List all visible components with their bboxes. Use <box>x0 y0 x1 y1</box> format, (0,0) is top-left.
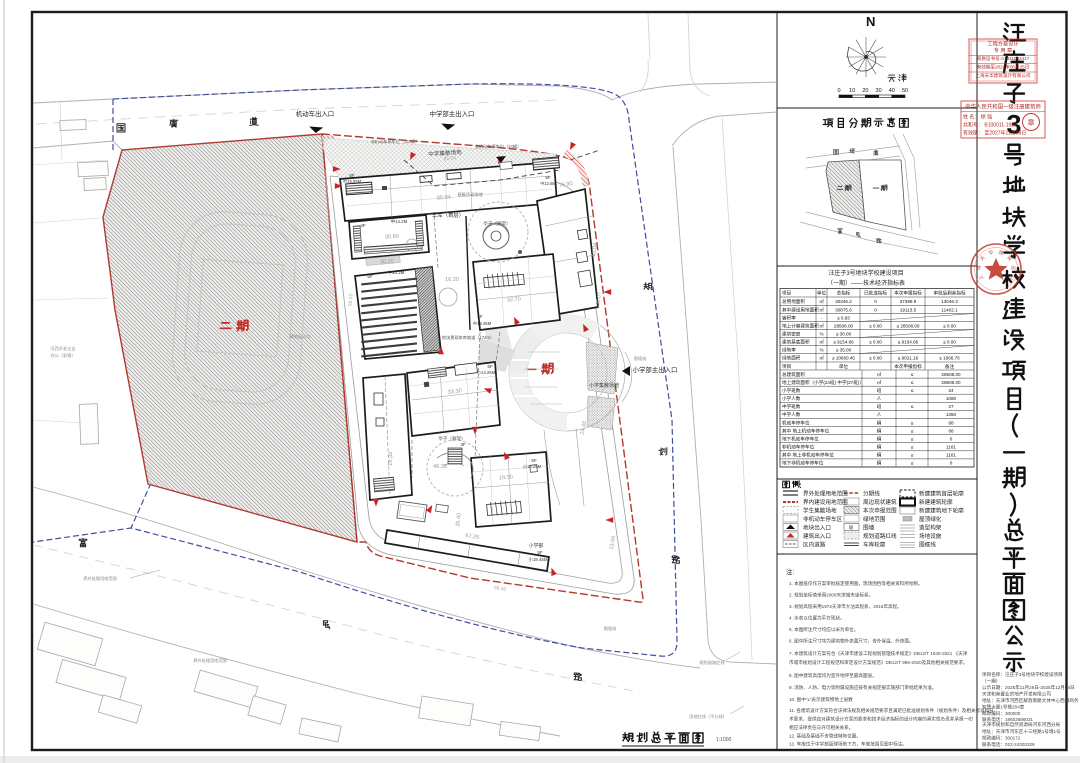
svg-text:容积率: 容积率 <box>782 315 796 322</box>
svg-text:车库轮廓: 车库轮廓 <box>863 541 886 549</box>
svg-text:本次申报范围: 本次申报范围 <box>863 507 897 515</box>
svg-text:汪庄子3号地块学校建设项目: 汪庄子3号地块学校建设项目 <box>828 269 903 277</box>
svg-text:工程方案设计: 工程方案设计 <box>987 40 1018 48</box>
svg-text:≤ 30.00: ≤ 30.00 <box>836 332 852 337</box>
svg-text:市城市规划设计工程规范和审定设计方案规范》DB12/T 99: 市城市规划设计工程规范和审定设计方案规范》DB12/T 998-2020及其他相… <box>789 659 968 666</box>
svg-text:规划道路红线: 规划道路红线 <box>863 532 897 540</box>
svg-text:地址：天津市河西区解放南路文体中心西侧商务: 地址：天津市河西区解放南路文体中心西侧商务 <box>982 697 1079 704</box>
svg-text:2. 规划坐标值采用2000天津城市坐标系。: 2. 规划坐标值采用2000天津城市坐标系。 <box>789 592 873 599</box>
svg-text:中学班数: 中学班数 <box>782 403 801 410</box>
svg-text:27: 27 <box>948 404 954 409</box>
svg-text:非机动车停车位（24辆）: 非机动车停车位（24辆） <box>475 143 522 150</box>
svg-text:其中 地上机动车停车位: 其中 地上机动车停车位 <box>782 427 830 434</box>
svg-text:地下机动车停车位: 地下机动车停车位 <box>782 435 819 442</box>
svg-text:规划道路红线: 规划道路红线 <box>699 659 725 666</box>
svg-text:20: 20 <box>862 88 868 94</box>
svg-text:≤ 9154.66: ≤ 9154.66 <box>898 340 919 345</box>
svg-text:建筑密度: 建筑密度 <box>782 331 801 338</box>
svg-text:分期线: 分期线 <box>863 490 880 498</box>
svg-text:机动车停车位: 机动车停车位 <box>782 419 810 426</box>
svg-text:设: 设 <box>1009 265 1016 270</box>
svg-text:中14.2M: 中14.2M <box>388 269 405 276</box>
svg-text:11402.1: 11402.1 <box>941 308 958 313</box>
svg-text:16.34: 16.34 <box>387 452 394 466</box>
svg-text:其中 地上非机动车停车位: 其中 地上非机动车停车位 <box>782 452 834 459</box>
svg-text:辆: 辆 <box>877 460 882 467</box>
svg-text:界内建设用地范围: 界内建设用地范围 <box>803 498 848 506</box>
svg-text:学生集散场地: 学生集散场地 <box>803 507 837 515</box>
svg-text:%: % <box>819 332 823 337</box>
svg-text:≤ 9154.66: ≤ 9154.66 <box>833 340 854 345</box>
svg-text:机动车出入口: 机动车出入口 <box>296 109 334 118</box>
svg-text:辆: 辆 <box>877 427 882 434</box>
svg-text:中12.6M: 中12.6M <box>540 180 556 187</box>
svg-text:中14.2M: 中14.2M <box>391 218 408 225</box>
svg-text:≤ 0.93: ≤ 0.93 <box>837 316 850 321</box>
svg-text:5F: 5F <box>545 175 551 180</box>
svg-text:㎡: ㎡ <box>819 298 824 304</box>
svg-text:㎡: ㎡ <box>819 339 824 345</box>
svg-text:19113.5: 19113.5 <box>900 308 917 313</box>
svg-text:30875.6: 30875.6 <box>835 308 852 313</box>
svg-text:㎡: ㎡ <box>877 379 882 385</box>
svg-text:专 用 章: 专 用 章 <box>994 46 1012 54</box>
svg-text:1. 本图纸仅作方案审批核定使用图，现场围挡等相关资料所绘制: 1. 本图纸仅作方案审批核定使用图，现场围挡等相关资料所绘制。 <box>789 580 923 587</box>
svg-text:N: N <box>866 14 875 29</box>
svg-text:总用地面积: 总用地面积 <box>782 298 805 305</box>
svg-text:11. 各建筑设计方案符合法律法规及相关规范要求且满足已批准: 11. 各建筑设计方案符合法律法规及相关规范要求且满足已批准规划条件（规划条件）… <box>789 707 994 714</box>
svg-text:≥ 9021.16: ≥ 9021.16 <box>898 356 919 361</box>
svg-text:上海天华建筑设计有限公司: 上海天华建筑设计有限公司 <box>975 72 1031 79</box>
svg-text:小学部主出入口: 小学部主出入口 <box>633 365 678 374</box>
svg-text:邮政编码：300000: 邮政编码：300000 <box>982 710 1021 717</box>
svg-text:总建筑面积: 总建筑面积 <box>782 371 805 378</box>
svg-text:3. 规划高程采用1972天津市大沽高程系，2015年高程。: 3. 规划高程采用1972天津市大沽高程系，2015年高程。 <box>789 603 902 610</box>
svg-text:小学班数: 小学班数 <box>782 387 801 394</box>
svg-text:6. 图中所注尺寸均为建筑物外表面尺寸，含外保温、外饰面。: 6. 图中所注尺寸均为建筑物外表面尺寸，含外保温、外饰面。 <box>789 638 914 645</box>
svg-text:0: 0 <box>874 299 877 304</box>
svg-text:小学集散场地: 小学集散场地 <box>589 382 619 389</box>
svg-text:13046.3: 13046.3 <box>941 299 958 304</box>
svg-text:46.35: 46.35 <box>433 464 447 470</box>
svg-text:章: 章 <box>1028 118 1035 127</box>
svg-text:联系电话：022-24303329: 联系电话：022-24303329 <box>982 741 1035 748</box>
svg-text:3F: 3F <box>460 442 465 447</box>
svg-text:≤ 0.00: ≤ 0.00 <box>943 324 956 329</box>
svg-text:场地设施: 场地设施 <box>919 532 942 540</box>
svg-text:审批后剩余指标: 审批后剩余指标 <box>933 290 966 297</box>
svg-text:围墙线: 围墙线 <box>634 355 647 362</box>
svg-text:≥ 1666.76: ≥ 1666.76 <box>939 356 960 361</box>
svg-text:10: 10 <box>849 88 855 94</box>
svg-text:单位: 单位 <box>817 290 827 297</box>
svg-text:围墙线: 围墙线 <box>604 625 617 632</box>
svg-text:人: 人 <box>877 396 882 401</box>
svg-text:（一期）——技术经济指标表: （一期）——技术经济指标表 <box>827 279 905 287</box>
svg-text:绿地面积: 绿地面积 <box>782 355 801 362</box>
svg-text:地下非机动车停车位: 地下非机动车停车位 <box>782 460 824 467</box>
svg-text:车库（首层）: 车库（首层） <box>432 211 464 219</box>
svg-text:小14.25M: 小14.25M <box>477 369 496 376</box>
svg-text:已批准指标: 已批准指标 <box>864 290 887 297</box>
svg-text:姓 名： 徐 强: 姓 名： 徐 强 <box>963 114 992 121</box>
svg-text:小学人数: 小学人数 <box>782 395 801 402</box>
svg-text:公示日期：2025年11月26日-2025年12月04日: 公示日期：2025年11月26日-2025年12月04日 <box>982 684 1075 691</box>
svg-text:新建建筑轮廓: 新建建筑轮廓 <box>919 498 953 506</box>
svg-text:地址：天津市河东区十三经路1号增1号: 地址：天津市河东区十三经路1号增1号 <box>982 728 1061 735</box>
svg-text:围墙: 围墙 <box>863 524 875 532</box>
svg-text:7. 本建筑设计方案符合《天津市建设工程规划管理技术规定》D: 7. 本建筑设计方案符合《天津市建设工程规划管理技术规定》DB12/T 1040… <box>789 650 968 657</box>
svg-text:40: 40 <box>889 88 895 94</box>
svg-text:屋顶绿化: 屋顶绿化 <box>919 515 942 523</box>
svg-text:单位: 单位 <box>839 363 849 370</box>
svg-text:5F: 5F <box>531 458 537 463</box>
svg-text:海: 海 <box>975 265 982 270</box>
svg-text:新建建筑首层轮廓: 新建建筑首层轮廓 <box>919 490 964 498</box>
svg-text:有效期： 至2027年11月08日: 有效期： 至2027年11月08日 <box>963 130 1026 137</box>
svg-text:28508.00: 28508.00 <box>834 324 854 329</box>
svg-text:5F: 5F <box>349 173 355 178</box>
svg-text:13. 车库位于中学部篮球场地下方，车库范围见图中标注。: 13. 车库位于中学部篮球场地下方，车库范围见图中标注。 <box>789 741 907 748</box>
svg-text:%: % <box>819 348 823 353</box>
svg-text:32.70: 32.70 <box>507 296 521 303</box>
svg-text:30.20: 30.20 <box>380 259 394 266</box>
svg-text:小学部: 小学部 <box>529 542 544 549</box>
svg-text:区内道路: 区内道路 <box>803 541 826 549</box>
svg-text:班级活动场地: 班级活动场地 <box>457 191 483 198</box>
svg-text:30.80: 30.80 <box>385 234 399 241</box>
svg-text:12. 基础及基础不含管线特地位置。: 12. 基础及基础不含管线特地位置。 <box>789 733 861 740</box>
svg-text:8. 图中建筑高度均为室外地坪至最高面层。: 8. 图中建筑高度均为室外地坪至最高面层。 <box>789 672 877 679</box>
svg-text:智慧大厦1号楼204室: 智慧大厦1号楼204室 <box>982 704 1025 711</box>
svg-text:周边现状建筑: 周边现状建筑 <box>863 498 897 506</box>
svg-text:中学人数: 中学人数 <box>782 411 801 418</box>
svg-text:小14.25M: 小14.25M <box>523 463 542 470</box>
svg-text:5F: 5F <box>367 274 373 279</box>
svg-text:有效期至2029年06月25日: 有效期至2029年06月25日 <box>977 64 1030 71</box>
svg-text:58.20: 58.20 <box>348 293 355 306</box>
svg-text:建筑出入口: 建筑出入口 <box>290 333 311 340</box>
svg-text:9. 消防、人防、电力等附属设施应按有关规定报实施部门审批结: 9. 消防、人防、电力等附属设施应按有关规定报实施部门审批结果为准。 <box>789 684 937 691</box>
svg-text:新建建筑地下轮廓: 新建建筑地下轮廓 <box>919 507 964 515</box>
svg-text:≥ 0.00: ≥ 0.00 <box>869 356 882 361</box>
svg-text:辆: 辆 <box>877 452 882 459</box>
svg-text:术要求，提供应对建筑设计方案的要求和技术经济指标的设计内容的: 术要求，提供应对建筑设计方案的要求和技术经济指标的设计内容的真实性负责并承担一切 <box>789 716 973 723</box>
svg-text:50: 50 <box>902 88 908 94</box>
svg-text:天津市规划和自然资源局河东河西分局: 天津市规划和自然资源局河东河西分局 <box>982 721 1061 728</box>
svg-text:中15.05M: 中15.05M <box>343 178 362 185</box>
svg-text:10. 图中“±”表示建筑物地上层数: 10. 图中“±”表示建筑物地上层数 <box>789 696 853 703</box>
svg-text:㎡: ㎡ <box>819 307 824 313</box>
svg-text:1161: 1161 <box>946 445 956 450</box>
svg-text:85.04: 85.04 <box>437 195 451 202</box>
svg-text:㎡: ㎡ <box>877 371 882 377</box>
svg-text:天津和美置业房地产开发有限公司: 天津和美置业房地产开发有限公司 <box>982 691 1051 698</box>
svg-text:人: 人 <box>877 412 882 417</box>
svg-text:≥ 10660.45: ≥ 10660.45 <box>832 356 855 361</box>
svg-text:㎡: ㎡ <box>819 355 824 361</box>
svg-text:共和号： B100011-1921: 共和号： B100011-1921 <box>963 122 1017 129</box>
svg-text:本次申报指标: 本次申报指标 <box>894 290 922 297</box>
svg-text:≥ 35.00: ≥ 35.00 <box>836 348 852 353</box>
svg-text:5F: 5F <box>487 364 493 369</box>
svg-text:本次申报指标: 本次申报指标 <box>894 363 922 370</box>
svg-text:28508.00: 28508.00 <box>941 372 961 377</box>
svg-text:≤ 28508.00: ≤ 28508.00 <box>897 324 920 329</box>
svg-text:界外处理用地范围: 界外处理用地范围 <box>83 575 117 582</box>
svg-text:1350: 1350 <box>946 412 957 417</box>
svg-text:其中建设用地面积: 其中建设用地面积 <box>782 307 819 314</box>
svg-text:小19.45M: 小19.45M <box>528 556 547 563</box>
svg-text:亭子（廊架）: 亭子（廊架） <box>438 435 466 442</box>
svg-text:地块出入口: 地块出入口 <box>803 524 831 532</box>
svg-text:班: 班 <box>877 387 882 394</box>
svg-text:68: 68 <box>948 420 954 425</box>
svg-text:建筑出入口: 建筑出入口 <box>803 532 831 540</box>
svg-text:地上计容建筑面积: 地上计容建筑面积 <box>782 323 819 330</box>
svg-text:40346.2: 40346.2 <box>835 299 852 304</box>
svg-text:辆: 辆 <box>877 419 882 426</box>
svg-text:河西开发企业: 河西开发企业 <box>50 345 75 352</box>
svg-text:建筑基底面积: 建筑基底面积 <box>782 339 810 346</box>
svg-text:界外处理用地范围: 界外处理用地范围 <box>803 490 848 498</box>
svg-text:27399.9: 27399.9 <box>900 299 917 304</box>
svg-text:6F: 6F <box>477 314 483 319</box>
svg-text:项目名称：汪庄子3号地块学校建设项目: 项目名称：汪庄子3号地块学校建设项目 <box>982 671 1063 678</box>
svg-text:非机动车停车位: 非机动车停车位 <box>782 444 815 451</box>
svg-text:0: 0 <box>837 88 840 94</box>
svg-text:中华人民共和国一级注册建筑师: 中华人民共和国一级注册建筑师 <box>965 103 1041 111</box>
svg-text:4F: 4F <box>360 223 366 228</box>
svg-text:总指标: 总指标 <box>837 290 851 297</box>
svg-text:0: 0 <box>950 461 953 466</box>
svg-text:24: 24 <box>948 388 954 393</box>
svg-text:≤ 0.00: ≤ 0.00 <box>943 340 956 345</box>
svg-text:办公（彩钢）: 办公（彩钢） <box>50 352 75 359</box>
svg-text:1161: 1161 <box>946 453 956 458</box>
svg-text:地块景观车库坡道（174m）: 地块景观车库坡道（174m） <box>442 334 494 341</box>
svg-text:中19.45M: 中19.45M <box>473 320 492 327</box>
svg-text:0: 0 <box>874 308 877 313</box>
svg-text:≤ 0.00: ≤ 0.00 <box>869 324 882 329</box>
svg-text:30: 30 <box>876 88 882 94</box>
svg-text:界外处理用地范围: 界外处理用地范围 <box>193 657 227 664</box>
svg-text:19.30: 19.30 <box>499 474 513 481</box>
svg-text:辆: 辆 <box>877 444 882 451</box>
svg-text:图框线: 图框线 <box>919 541 936 549</box>
svg-text:邮政编码：300171: 邮政编码：300171 <box>982 735 1021 742</box>
svg-text:地上建筑面积（小学(24班) 中学(27班)）: 地上建筑面积（小学(24班) 中学(27班)） <box>782 379 864 386</box>
svg-text::: : <box>799 481 802 490</box>
svg-text:5. 本图所注尺寸均应以米为单位。: 5. 本图所注尺寸均应以米为单位。 <box>789 626 858 633</box>
svg-text:≤ 0.00: ≤ 0.00 <box>869 340 882 345</box>
svg-text:非机动车停车区: 非机动车停车区 <box>803 515 843 523</box>
svg-text:相应法律责任与许可相关关系。: 相应法律责任与许可相关关系。 <box>789 724 853 731</box>
svg-text:亭子（廊架）: 亭子（廊架） <box>483 220 511 227</box>
svg-text:用地红线（平分线）: 用地红线（平分线） <box>689 713 727 720</box>
svg-text:4. 水表以位置为平方现状。: 4. 水表以位置为平方现状。 <box>789 615 845 622</box>
svg-text:0: 0 <box>950 436 953 441</box>
svg-text:5F: 5F <box>537 550 543 555</box>
svg-text:辆: 辆 <box>877 435 882 442</box>
svg-text:非机动车停车位（150辆）: 非机动车停车位（150辆） <box>371 138 420 145</box>
svg-text:绿地范围: 绿地范围 <box>863 515 886 523</box>
svg-text:35.40: 35.40 <box>455 513 462 527</box>
svg-text:㎡: ㎡ <box>819 323 824 329</box>
svg-text:注:: 注: <box>786 567 794 576</box>
svg-text:1080: 1080 <box>946 396 957 401</box>
svg-text:资质证书号:A1311002417: 资质证书号:A1311002417 <box>977 55 1030 62</box>
svg-text:绿地率: 绿地率 <box>782 347 796 354</box>
svg-text:备注: 备注 <box>945 363 955 370</box>
svg-text:28508.00: 28508.00 <box>941 380 961 385</box>
svg-text:班: 班 <box>877 403 882 410</box>
svg-text:造型构架: 造型构架 <box>919 524 942 532</box>
svg-text:85.04: 85.04 <box>443 155 456 162</box>
svg-text:坡: 坡 <box>849 524 854 531</box>
svg-text:1:1000: 1:1000 <box>716 737 732 743</box>
svg-text:中学部主出入口: 中学部主出入口 <box>430 109 475 118</box>
svg-text:68: 68 <box>948 428 954 433</box>
svg-text:16.20: 16.20 <box>445 277 459 283</box>
